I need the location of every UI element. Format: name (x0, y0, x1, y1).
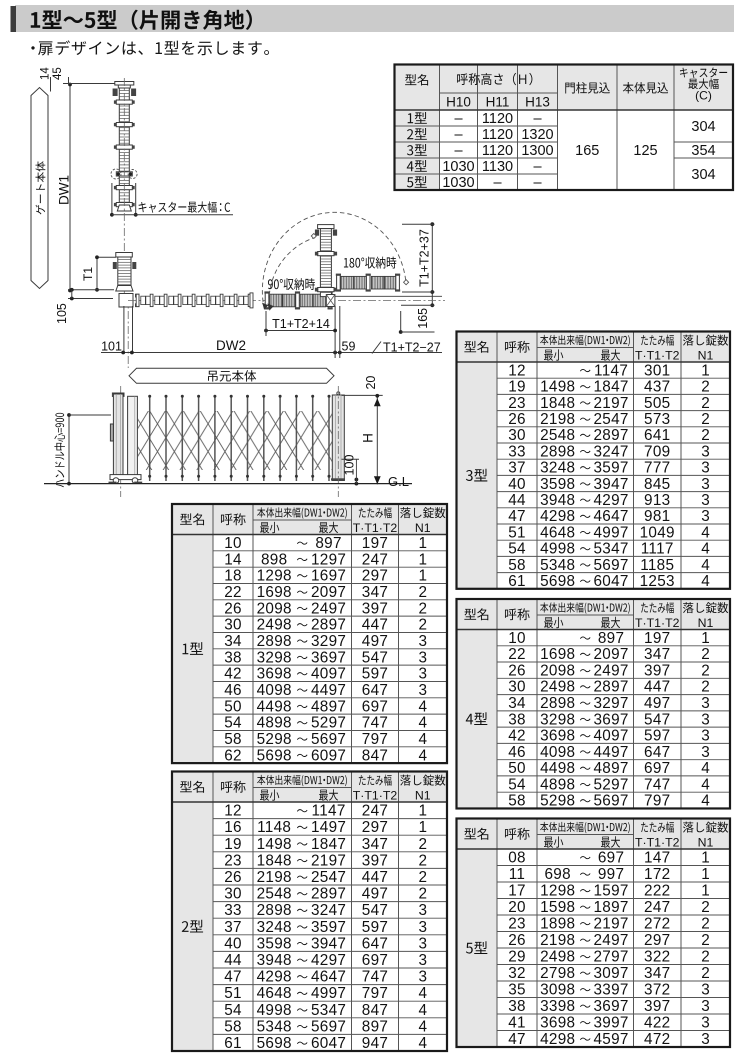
svg-text:26: 26 (508, 932, 526, 949)
svg-text:2898: 2898 (540, 443, 575, 460)
svg-text:5348: 5348 (540, 557, 575, 574)
svg-text:32: 32 (508, 965, 526, 982)
svg-text:4648: 4648 (540, 524, 575, 541)
svg-text:5697: 5697 (311, 1018, 346, 1035)
svg-text:4: 4 (418, 715, 427, 732)
svg-text:19: 19 (224, 836, 242, 853)
svg-text:3: 3 (701, 728, 710, 745)
svg-text:4597: 4597 (593, 1031, 628, 1048)
svg-text:397: 397 (362, 600, 388, 617)
svg-text:1697: 1697 (311, 568, 346, 585)
svg-text:3697: 3697 (593, 711, 628, 728)
svg-text:2498: 2498 (540, 679, 575, 696)
svg-text:H: H (361, 433, 376, 443)
svg-text:647: 647 (362, 935, 388, 952)
svg-text:N1: N1 (698, 616, 714, 630)
svg-text:3: 3 (418, 935, 427, 952)
svg-text:447: 447 (362, 617, 388, 634)
svg-text:–: – (493, 175, 502, 191)
svg-text:4648: 4648 (257, 985, 292, 1002)
svg-text:3247: 3247 (593, 443, 628, 460)
svg-text:4: 4 (418, 985, 427, 1002)
svg-text:33: 33 (224, 902, 242, 919)
svg-text:35: 35 (508, 982, 526, 999)
svg-text:19: 19 (508, 379, 526, 396)
svg-text:2897: 2897 (593, 427, 628, 444)
svg-text:3: 3 (701, 711, 710, 728)
svg-text:472: 472 (644, 1031, 670, 1048)
svg-text:4498: 4498 (540, 760, 575, 777)
svg-text:37: 37 (224, 919, 242, 936)
svg-text:397: 397 (644, 998, 670, 1015)
svg-text:12: 12 (224, 803, 242, 820)
svg-text:3: 3 (701, 998, 710, 1015)
svg-text:34: 34 (508, 695, 526, 712)
svg-text:G.L: G.L (388, 474, 409, 489)
svg-text:61: 61 (508, 573, 526, 590)
svg-text:3298: 3298 (257, 649, 292, 666)
svg-text:54: 54 (224, 1002, 242, 1019)
svg-text:2898: 2898 (540, 695, 575, 712)
svg-text:44: 44 (224, 952, 242, 969)
svg-text:54: 54 (224, 715, 242, 732)
svg-text:1120: 1120 (482, 111, 513, 127)
svg-text:T1: T1 (81, 267, 95, 281)
svg-text:1: 1 (418, 551, 427, 568)
svg-text:2497: 2497 (311, 600, 346, 617)
svg-text:3: 3 (701, 982, 710, 999)
svg-text:897: 897 (315, 535, 341, 552)
svg-text:4: 4 (701, 573, 710, 590)
svg-text:1130: 1130 (482, 159, 513, 175)
svg-text:17: 17 (508, 883, 526, 900)
svg-text:–: – (454, 127, 463, 143)
svg-text:4898: 4898 (257, 715, 292, 732)
svg-text:(C): (C) (695, 89, 712, 103)
svg-text:–: – (533, 175, 542, 191)
svg-text:2197: 2197 (593, 395, 628, 412)
svg-text:1848: 1848 (540, 395, 575, 412)
svg-text:301: 301 (644, 362, 670, 379)
svg-text:2097: 2097 (311, 584, 346, 601)
svg-text:4298: 4298 (257, 969, 292, 986)
svg-text:3: 3 (701, 695, 710, 712)
svg-text:647: 647 (362, 682, 388, 699)
svg-text:6047: 6047 (311, 1035, 346, 1052)
svg-text:913: 913 (644, 492, 670, 509)
svg-text:197: 197 (644, 630, 670, 647)
svg-text:2: 2 (418, 886, 427, 903)
svg-text:1897: 1897 (593, 899, 628, 916)
svg-text:747: 747 (644, 776, 670, 793)
svg-text:3697: 3697 (311, 649, 346, 666)
svg-text:297: 297 (362, 568, 388, 585)
svg-text:3598: 3598 (540, 476, 575, 493)
svg-text:2548: 2548 (257, 886, 292, 903)
svg-text:1848: 1848 (257, 852, 292, 869)
svg-text:10: 10 (224, 535, 242, 552)
svg-text:437: 437 (644, 379, 670, 396)
svg-text:30: 30 (224, 617, 242, 634)
svg-text:2497: 2497 (593, 663, 628, 680)
svg-text:172: 172 (644, 866, 670, 883)
svg-text:247: 247 (644, 899, 670, 916)
svg-text:3097: 3097 (593, 965, 628, 982)
svg-text:165: 165 (416, 308, 430, 329)
svg-text:3: 3 (701, 744, 710, 761)
svg-text:3948: 3948 (540, 492, 575, 509)
svg-text:4: 4 (418, 698, 427, 715)
svg-text:61: 61 (224, 1035, 242, 1052)
svg-text:1898: 1898 (540, 916, 575, 933)
svg-text:2: 2 (701, 663, 710, 680)
svg-text:3: 3 (701, 476, 710, 493)
svg-text:1253: 1253 (640, 573, 675, 590)
svg-text:4997: 4997 (311, 985, 346, 1002)
svg-text:N1: N1 (415, 788, 431, 802)
svg-text:4897: 4897 (593, 760, 628, 777)
svg-text:497: 497 (362, 886, 388, 903)
svg-text:847: 847 (362, 1002, 388, 1019)
svg-text:58: 58 (224, 731, 242, 748)
svg-text:30: 30 (224, 886, 242, 903)
svg-text:647: 647 (644, 744, 670, 761)
svg-text:N1: N1 (698, 348, 714, 362)
svg-text:698: 698 (544, 866, 570, 883)
svg-text:4098: 4098 (257, 682, 292, 699)
svg-text:697: 697 (644, 760, 670, 777)
svg-text:3698: 3698 (540, 1015, 575, 1032)
svg-text:697: 697 (598, 850, 624, 867)
svg-text:1147: 1147 (312, 803, 346, 820)
svg-text:DW1: DW1 (57, 175, 72, 205)
svg-text:46: 46 (224, 682, 242, 699)
svg-text:T·T1·T2: T·T1·T2 (635, 616, 680, 630)
svg-text:10: 10 (508, 630, 526, 647)
svg-text:125: 125 (633, 143, 657, 159)
svg-text:5348: 5348 (257, 1018, 292, 1035)
svg-text:2: 2 (701, 899, 710, 916)
svg-text:5697: 5697 (593, 793, 628, 810)
svg-text:1598: 1598 (540, 899, 575, 916)
svg-text:797: 797 (644, 793, 670, 810)
svg-text:5347: 5347 (311, 1002, 346, 1019)
svg-text:4298: 4298 (540, 508, 575, 525)
svg-text:1030: 1030 (442, 159, 474, 175)
svg-text:397: 397 (644, 663, 670, 680)
svg-text:2: 2 (701, 379, 710, 396)
svg-text:26: 26 (508, 663, 526, 680)
svg-text:3597: 3597 (311, 919, 346, 936)
svg-text:38: 38 (508, 998, 526, 1015)
svg-text:2897: 2897 (311, 617, 346, 634)
svg-text:4098: 4098 (540, 744, 575, 761)
svg-text:347: 347 (362, 584, 388, 601)
svg-text:1148: 1148 (257, 819, 291, 836)
svg-text:981: 981 (644, 508, 670, 525)
svg-text:4097: 4097 (311, 666, 346, 683)
svg-text:797: 797 (362, 731, 388, 748)
svg-text:4: 4 (701, 557, 710, 574)
svg-text:3297: 3297 (311, 633, 346, 650)
svg-text:3: 3 (418, 649, 427, 666)
svg-text:4097: 4097 (593, 728, 628, 745)
svg-text:4497: 4497 (311, 682, 346, 699)
svg-text:4998: 4998 (540, 541, 575, 558)
svg-text:T1+T2+37: T1+T2+37 (417, 229, 431, 287)
svg-text:898: 898 (261, 551, 287, 568)
svg-text:2498: 2498 (540, 949, 575, 966)
svg-text:08: 08 (508, 850, 526, 867)
svg-text:709: 709 (644, 443, 670, 460)
svg-text:H10: H10 (446, 94, 471, 109)
svg-text:1: 1 (418, 803, 427, 820)
svg-text:–: – (454, 111, 463, 127)
svg-text:1847: 1847 (593, 379, 628, 396)
svg-text:2898: 2898 (257, 633, 292, 650)
svg-text:T·T1·T2: T·T1·T2 (635, 348, 680, 362)
svg-text:3: 3 (701, 443, 710, 460)
svg-text:2547: 2547 (593, 411, 628, 428)
svg-text:2797: 2797 (593, 949, 628, 966)
svg-text:4647: 4647 (311, 969, 346, 986)
svg-text:H11: H11 (486, 94, 510, 109)
svg-text:1185: 1185 (640, 557, 674, 574)
svg-text:2198: 2198 (540, 932, 575, 949)
svg-text:23: 23 (508, 916, 526, 933)
svg-text:2498: 2498 (257, 617, 292, 634)
svg-text:1297: 1297 (311, 551, 346, 568)
svg-text:T·T1·T2: T·T1·T2 (635, 835, 680, 849)
svg-text:1: 1 (701, 630, 710, 647)
svg-text:597: 597 (362, 919, 388, 936)
svg-text:40: 40 (508, 476, 526, 493)
svg-text:2548: 2548 (540, 427, 575, 444)
svg-text:347: 347 (644, 965, 670, 982)
svg-text:–: – (454, 143, 463, 159)
svg-text:1: 1 (701, 866, 710, 883)
svg-text:47: 47 (508, 1031, 526, 1048)
svg-text:37: 37 (508, 460, 526, 477)
svg-text:23: 23 (508, 395, 526, 412)
svg-text:2798: 2798 (540, 965, 575, 982)
svg-text:1: 1 (701, 850, 710, 867)
svg-text:3: 3 (418, 633, 427, 650)
svg-text:3248: 3248 (540, 460, 575, 477)
svg-text:4: 4 (701, 524, 710, 541)
svg-text:4897: 4897 (311, 698, 346, 715)
svg-text:5298: 5298 (540, 793, 575, 810)
svg-text:747: 747 (362, 969, 388, 986)
svg-text:30: 30 (508, 679, 526, 696)
svg-text:222: 222 (644, 883, 670, 900)
svg-text:2: 2 (701, 427, 710, 444)
svg-text:3248: 3248 (257, 919, 292, 936)
svg-text:41: 41 (508, 1015, 526, 1032)
svg-text:14: 14 (40, 67, 52, 80)
svg-text:845: 845 (644, 476, 670, 493)
svg-text:4: 4 (701, 541, 710, 558)
svg-text:47: 47 (508, 508, 526, 525)
svg-text:247: 247 (362, 803, 388, 820)
svg-text:5698: 5698 (540, 573, 575, 590)
svg-text:3: 3 (418, 919, 427, 936)
svg-text:1298: 1298 (540, 883, 575, 900)
svg-text:447: 447 (644, 679, 670, 696)
svg-text:5698: 5698 (257, 1035, 292, 1052)
svg-text:2: 2 (701, 916, 710, 933)
svg-text:3698: 3698 (540, 728, 575, 745)
svg-text:101: 101 (101, 340, 122, 354)
svg-text:51: 51 (224, 985, 242, 1002)
svg-text:4647: 4647 (593, 508, 628, 525)
svg-text:5698: 5698 (257, 747, 292, 764)
svg-text:3: 3 (701, 460, 710, 477)
svg-text:347: 347 (362, 836, 388, 853)
svg-text:6047: 6047 (593, 573, 628, 590)
svg-text:3948: 3948 (257, 952, 292, 969)
svg-text:2: 2 (701, 411, 710, 428)
svg-text:2897: 2897 (593, 679, 628, 696)
svg-text:26: 26 (224, 869, 242, 886)
svg-text:897: 897 (362, 1018, 388, 1035)
svg-text:T·T1·T2: T·T1·T2 (353, 521, 398, 535)
svg-text:23: 23 (224, 852, 242, 869)
svg-text:26: 26 (224, 600, 242, 617)
svg-text:38: 38 (224, 649, 242, 666)
svg-text:58: 58 (224, 1018, 242, 1035)
svg-text:22: 22 (508, 646, 526, 663)
svg-text:54: 54 (508, 776, 526, 793)
svg-text:4: 4 (418, 1002, 427, 1019)
svg-text:51: 51 (508, 524, 526, 541)
svg-text:11: 11 (509, 866, 525, 883)
svg-text:165: 165 (575, 143, 599, 159)
svg-text:3397: 3397 (593, 982, 628, 999)
svg-text:4298: 4298 (540, 1031, 575, 1048)
svg-text:2097: 2097 (593, 646, 628, 663)
svg-text:H13: H13 (525, 94, 550, 109)
svg-text:3997: 3997 (593, 1015, 628, 1032)
svg-text:1698: 1698 (257, 584, 292, 601)
svg-text:4498: 4498 (257, 698, 292, 715)
svg-text:50: 50 (508, 760, 526, 777)
svg-text:4997: 4997 (593, 524, 628, 541)
svg-text:3947: 3947 (593, 476, 628, 493)
svg-text:3298: 3298 (540, 711, 575, 728)
svg-text:297: 297 (362, 819, 388, 836)
svg-text:2198: 2198 (257, 869, 292, 886)
svg-text:44: 44 (508, 492, 526, 509)
svg-text:2: 2 (701, 965, 710, 982)
svg-text:3: 3 (418, 682, 427, 699)
svg-text:105: 105 (55, 303, 69, 324)
svg-text:33: 33 (508, 443, 526, 460)
svg-text:2197: 2197 (311, 852, 346, 869)
svg-text:20: 20 (364, 376, 378, 390)
svg-text:4: 4 (418, 1035, 427, 1052)
svg-text:2: 2 (701, 932, 710, 949)
svg-text:2898: 2898 (257, 902, 292, 919)
svg-text:597: 597 (644, 728, 670, 745)
svg-text:5347: 5347 (593, 541, 628, 558)
svg-text:272: 272 (644, 916, 670, 933)
svg-text:3: 3 (418, 952, 427, 969)
svg-text:447: 447 (362, 869, 388, 886)
svg-text:847: 847 (362, 747, 388, 764)
svg-text:29: 29 (508, 949, 526, 966)
svg-text:45: 45 (52, 67, 64, 80)
svg-text:4898: 4898 (540, 776, 575, 793)
svg-text:2: 2 (418, 869, 427, 886)
svg-text:–: – (533, 159, 542, 175)
svg-text:1597: 1597 (593, 883, 628, 900)
svg-text:4: 4 (418, 731, 427, 748)
svg-text:DW2: DW2 (216, 338, 246, 353)
svg-text:5297: 5297 (311, 715, 346, 732)
svg-text:4: 4 (701, 776, 710, 793)
svg-text:697: 697 (362, 952, 388, 969)
svg-text:1: 1 (418, 535, 427, 552)
svg-text:14: 14 (224, 551, 242, 568)
svg-text:N1: N1 (698, 835, 714, 849)
svg-text:5297: 5297 (593, 776, 628, 793)
svg-text:N1: N1 (415, 521, 431, 535)
svg-text:3947: 3947 (311, 935, 346, 952)
svg-text:4297: 4297 (311, 952, 346, 969)
svg-text:2198: 2198 (540, 411, 575, 428)
svg-text:573: 573 (644, 411, 670, 428)
svg-text:58: 58 (508, 793, 526, 810)
svg-text:304: 304 (691, 119, 715, 135)
svg-text:4: 4 (701, 760, 710, 777)
svg-text:2: 2 (418, 584, 427, 601)
svg-text:197: 197 (362, 535, 388, 552)
svg-text:897: 897 (598, 630, 624, 647)
svg-text:547: 547 (644, 711, 670, 728)
svg-text:1: 1 (418, 819, 427, 836)
svg-text:3697: 3697 (593, 998, 628, 1015)
svg-text:2: 2 (701, 679, 710, 696)
svg-text:2: 2 (418, 617, 427, 634)
svg-text:947: 947 (362, 1035, 388, 1052)
svg-text:347: 347 (644, 646, 670, 663)
svg-text:47: 47 (224, 969, 242, 986)
svg-text:3: 3 (701, 1031, 710, 1048)
svg-text:38: 38 (508, 711, 526, 728)
svg-text:797: 797 (362, 985, 388, 1002)
svg-text:3: 3 (701, 1015, 710, 1032)
svg-text:–: – (533, 111, 542, 127)
svg-text:4297: 4297 (593, 492, 628, 509)
svg-text:354: 354 (691, 143, 715, 159)
svg-text:3598: 3598 (257, 935, 292, 952)
svg-text:547: 547 (362, 902, 388, 919)
svg-text:1030: 1030 (442, 175, 474, 191)
svg-text:40: 40 (224, 935, 242, 952)
svg-text:4497: 4497 (593, 744, 628, 761)
svg-text:1300: 1300 (521, 143, 553, 159)
svg-text:322: 322 (644, 949, 670, 966)
svg-text:1120: 1120 (482, 143, 513, 159)
svg-text:2547: 2547 (311, 869, 346, 886)
svg-text:3098: 3098 (540, 982, 575, 999)
svg-text:2197: 2197 (593, 916, 628, 933)
svg-text:42: 42 (508, 728, 526, 745)
svg-text:2: 2 (418, 852, 427, 869)
svg-text:1049: 1049 (640, 524, 675, 541)
svg-text:4998: 4998 (257, 1002, 292, 1019)
